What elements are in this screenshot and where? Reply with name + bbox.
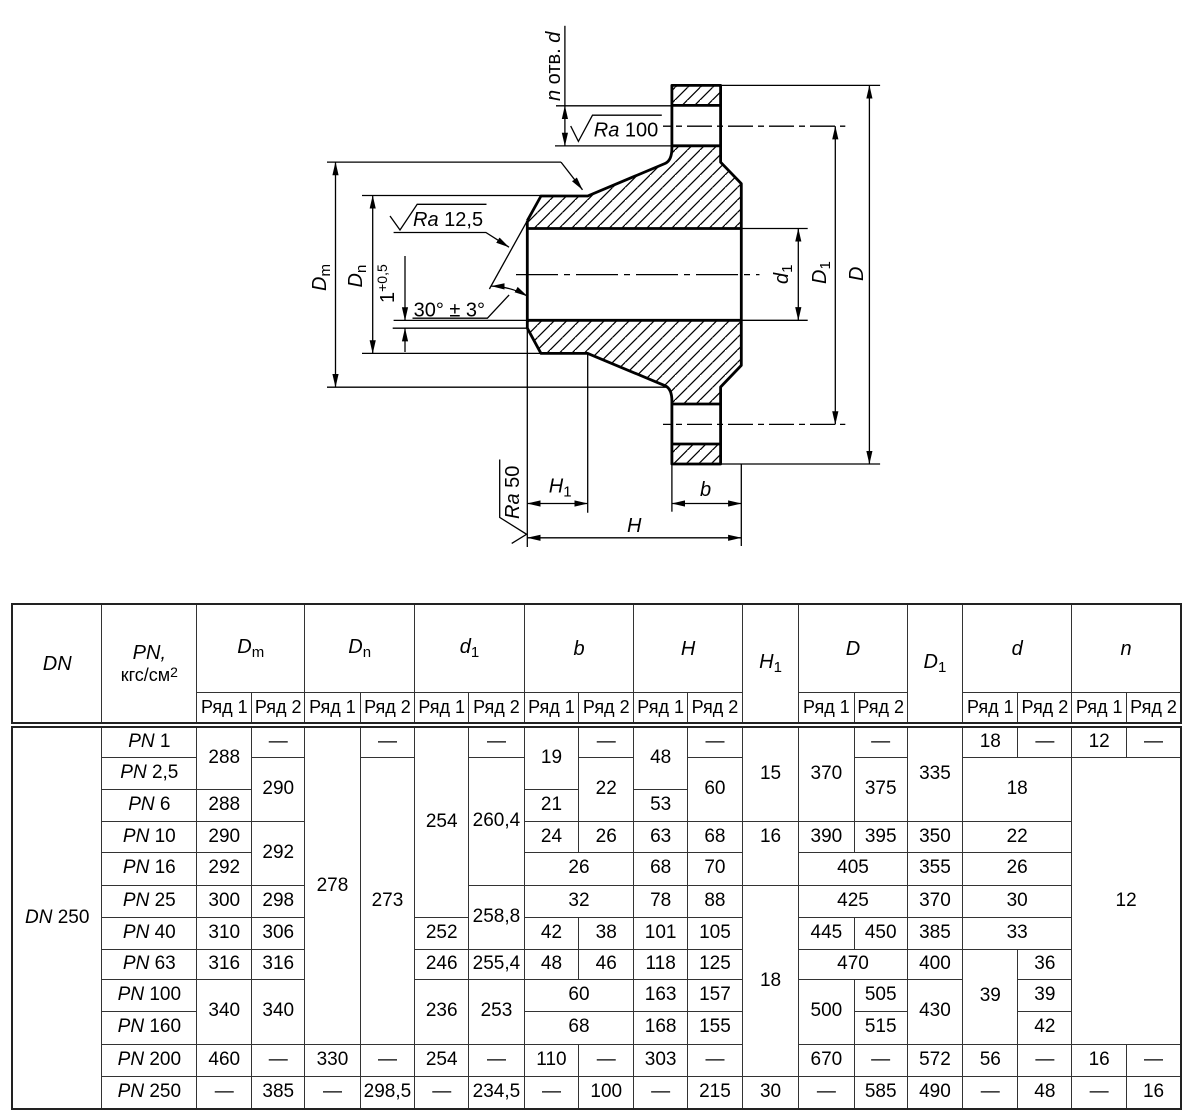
svg-text:Ra 100: Ra 100 <box>594 120 659 142</box>
svg-text:d1: d1 <box>771 265 796 284</box>
svg-text:D1: D1 <box>809 261 834 284</box>
svg-text:Ra 12,5: Ra 12,5 <box>413 209 483 231</box>
svg-text:b: b <box>700 479 711 501</box>
svg-text:Ra 50: Ra 50 <box>502 466 524 519</box>
svg-text:H1: H1 <box>549 476 572 501</box>
svg-text:D: D <box>846 267 868 281</box>
svg-text:Dm: Dm <box>309 264 334 291</box>
svg-text:1+0,5: 1+0,5 <box>374 264 399 303</box>
svg-text:H: H <box>627 515 642 537</box>
svg-text:n отв. d: n отв. d <box>543 31 565 101</box>
svg-text:30° ± 3°: 30° ± 3° <box>414 300 485 322</box>
svg-text:Dn: Dn <box>345 265 370 288</box>
